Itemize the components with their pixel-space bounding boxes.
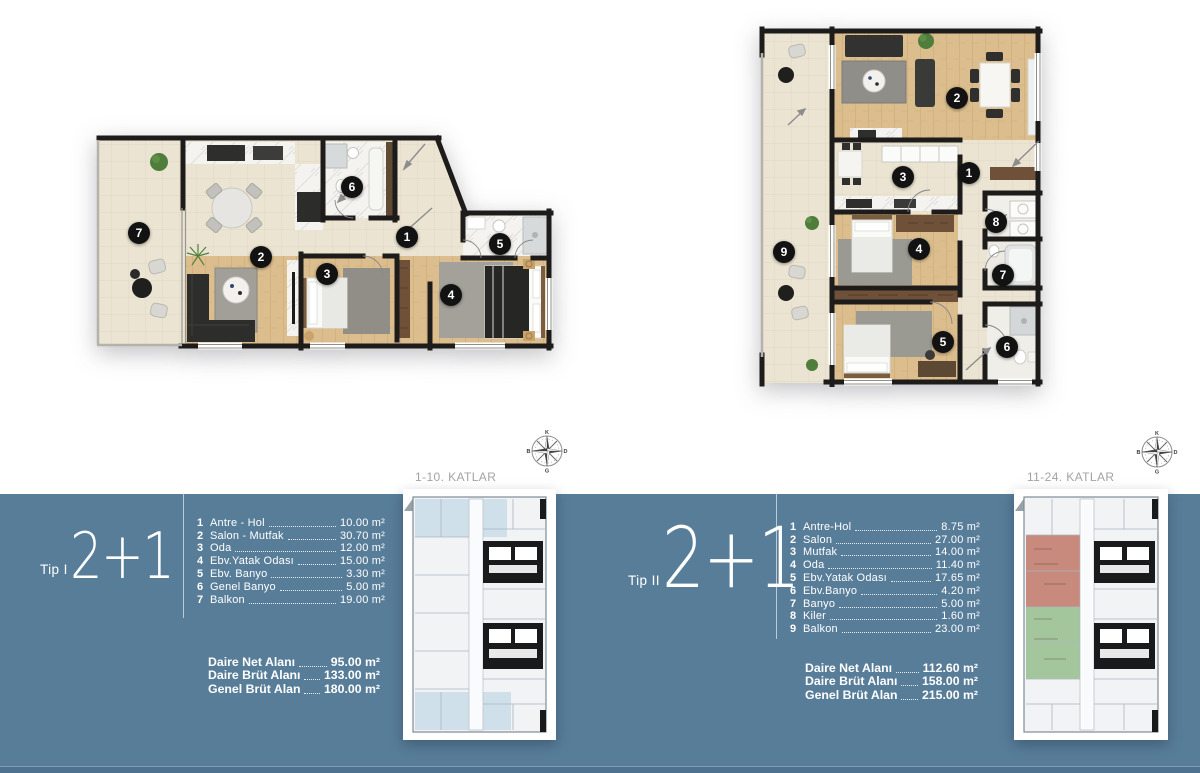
room-name: Ebv. Banyo [210,568,267,580]
room-area: 15.00 m² [340,555,385,567]
room-area: 23.00 m² [935,623,980,635]
room-row: 3Oda12.00 m² [197,542,385,555]
floor-plan-tip1 [95,128,555,353]
room-row: 5Ebv.Yatak Odası17.65 m² [790,571,980,584]
room-badge: 1 [396,226,418,248]
tip2-type: 2+1 [662,520,799,596]
total-row: Daire Net Alanı112.60 m² [805,661,978,675]
room-number: 4 [790,559,803,571]
room-badge: 6 [341,176,363,198]
leader-dots [235,551,336,552]
room-name: Mutfak [803,546,837,558]
keyplan-tip1 [403,489,556,740]
room-row: 1Antre-Hol8.75 m² [790,520,980,533]
total-value: 112.60 m² [923,661,978,675]
room-row: 9Balkon23.00 m² [790,622,980,635]
room-area: 8.75 m² [941,521,980,533]
room-number: 3 [790,546,803,558]
total-value: 95.00 m² [331,655,380,669]
room-row: 6Genel Banyo5.00 m² [197,580,385,593]
compass-s-label: G [545,469,549,475]
room-number: 1 [790,521,803,533]
leader-dots [836,543,931,544]
leader-dots [861,594,937,595]
compass-w-label: B [1137,450,1141,456]
leader-dots [896,672,919,673]
compass-n-label: K [545,430,549,436]
leader-dots [304,679,319,680]
room-name: Salon [803,534,832,546]
leader-dots [855,530,937,531]
leader-dots [901,685,917,686]
room-name: Salon - Mutfak [210,530,284,542]
room-row: 7Banyo5.00 m² [790,597,980,610]
leader-dots [271,577,342,578]
room-badge: 8 [985,211,1007,233]
room-area: 27.00 m² [935,534,980,546]
room-area: 17.65 m² [935,572,980,584]
room-number: 4 [197,555,210,567]
room-row: 3Mutfak14.00 m² [790,546,980,559]
total-value: 215.00 m² [922,688,978,702]
tip2-totals: Daire Net Alanı112.60 m²Daire Brüt Alanı… [805,661,978,702]
keyplan-tip2 [1014,489,1168,740]
room-badge: 6 [996,336,1018,358]
room-name: Ebv.Yatak Odası [210,555,294,567]
room-name: Balkon [210,594,245,606]
room-name: Ebv.Yatak Odası [803,572,887,584]
total-value: 133.00 m² [324,668,380,682]
room-name: Antre-Hol [803,521,851,533]
room-area: 11.40 m² [936,559,980,571]
leader-dots [891,581,931,582]
room-row: 8Kiler1.60 m² [790,610,980,623]
room-name: Genel Banyo [210,581,276,593]
total-row: Daire Net Alanı95.00 m² [208,655,380,669]
leader-dots [280,590,342,591]
room-number: 3 [197,542,210,554]
room-badge: 7 [128,222,150,244]
room-number: 7 [790,598,803,610]
compass-n-label: K [1155,431,1159,437]
compass-rose-right: K B D G [1135,427,1179,475]
room-number: 2 [197,530,210,542]
room-name: Balkon [803,623,838,635]
leader-dots [901,699,917,700]
total-row: Genel Brüt Alan215.00 m² [805,688,978,702]
room-area: 14.00 m² [935,546,980,558]
room-row: 2Salon - Mutfak30.70 m² [197,529,385,542]
leader-dots [269,526,336,527]
total-row: Daire Brüt Alanı158.00 m² [805,675,978,689]
room-number: 6 [790,585,803,597]
room-area: 3.30 m² [346,568,385,580]
room-area: 10.00 m² [340,517,385,529]
total-label: Genel Brüt Alan [805,688,897,702]
total-label: Daire Net Alanı [805,661,892,675]
tip2-room-list: 1Antre-Hol8.75 m²2Salon27.00 m²3Mutfak14… [790,520,980,635]
tip1-totals: Daire Net Alanı95.00 m²Daire Brüt Alanı1… [208,655,380,696]
room-number: 9 [790,623,803,635]
keyplan-card-tip1 [403,489,556,740]
room-number: 5 [790,572,803,584]
room-row: 7Balkon19.00 m² [197,593,385,606]
leader-dots [288,539,336,540]
total-label: Daire Net Alanı [208,655,295,669]
room-row: 4Ebv.Yatak Odası15.00 m² [197,554,385,567]
room-name: Oda [210,542,231,554]
compass-rose-left: K B D G [525,426,569,474]
leader-dots [839,607,937,608]
leader-dots [828,568,931,569]
room-badge: 4 [908,238,930,260]
room-number: 8 [790,610,803,622]
room-badge: 4 [440,284,462,306]
total-row: Genel Brüt Alan180.00 m² [208,682,380,696]
compass-e-label: D [1174,450,1178,456]
leader-dots [830,619,937,620]
room-number: 2 [790,534,803,546]
room-area: 5.00 m² [941,598,980,610]
room-badge: 1 [958,162,980,184]
room-number: 1 [197,517,210,529]
room-name: Kiler [803,610,826,622]
room-area: 30.70 m² [340,530,385,542]
room-badge: 9 [773,241,795,263]
room-area: 19.00 m² [340,594,385,606]
floor-plan-tip2 [758,25,1044,387]
leader-dots [299,666,327,667]
room-row: 1Antre - Hol10.00 m² [197,516,385,529]
room-row: 2Salon27.00 m² [790,533,980,546]
band-footer-strip [0,766,1200,773]
room-badge: 5 [489,233,511,255]
room-badge: 3 [316,263,338,285]
room-name: Ebv.Banyo [803,585,857,597]
total-label: Daire Brüt Alanı [805,674,897,688]
leader-dots [841,555,931,556]
total-value: 180.00 m² [324,682,380,696]
tip1-type: 2+1 [70,529,173,585]
leader-dots [249,603,336,604]
room-row: 4Oda11.40 m² [790,558,980,571]
compass-w-label: B [527,449,531,455]
leader-dots [298,564,336,565]
room-badge: 5 [932,331,954,353]
room-name: Antre - Hol [210,517,265,529]
room-area: 1.60 m² [941,610,980,622]
total-label: Daire Brüt Alanı [208,668,300,682]
keyplan-card-tip2 [1014,489,1168,740]
room-area: 4.20 m² [941,585,980,597]
room-badge: 2 [946,87,968,109]
room-name: Banyo [803,598,835,610]
compass-e-label: D [564,449,568,455]
tip1-title: Tip I 2+1 [40,529,199,585]
total-row: Daire Brüt Alanı133.00 m² [208,669,380,683]
tip1-room-list: 1Antre - Hol10.00 m²2Salon - Mutfak30.70… [197,516,385,606]
total-label: Genel Brüt Alan [208,682,300,696]
room-row: 6Ebv.Banyo4.20 m² [790,584,980,597]
room-number: 5 [197,568,210,580]
room-number: 6 [197,581,210,593]
room-badge: 3 [892,166,914,188]
room-name: Oda [803,559,824,571]
room-number: 7 [197,594,210,606]
compass-s-label: G [1155,470,1159,476]
room-area: 12.00 m² [340,542,385,554]
floors-caption-tip1: 1-10. KATLAR [415,470,496,484]
room-badge: 7 [992,264,1014,286]
leader-dots [304,693,319,694]
tip1-label: Tip I [40,562,68,577]
room-area: 5.00 m² [346,581,385,593]
floors-caption-tip2: 11-24. KATLAR [1027,470,1114,484]
brochure-page: 1234567 123456789 K B D G K [0,0,1200,773]
room-badge: 2 [250,246,272,268]
room-row: 5Ebv. Banyo3.30 m² [197,567,385,580]
total-value: 158.00 m² [922,674,978,688]
tip2-label: Tip II [628,573,660,588]
leader-dots [842,632,931,633]
